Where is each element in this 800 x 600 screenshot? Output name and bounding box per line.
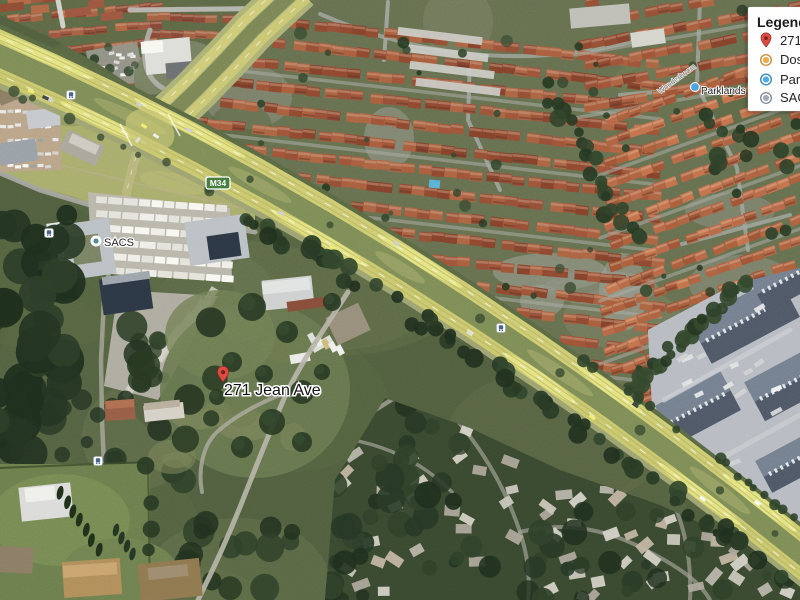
svg-text:Dosprop: Dosprop xyxy=(780,52,800,67)
svg-text:Parklands: Parklands xyxy=(780,72,800,87)
svg-text:SACS: SACS xyxy=(780,90,800,105)
svg-text:Legend: Legend xyxy=(757,14,800,30)
svg-text:M34: M34 xyxy=(210,178,227,188)
svg-text:271 Jean Ave: 271 Jean Ave xyxy=(224,382,321,399)
svg-text:271 Jean Ave: 271 Jean Ave xyxy=(780,33,800,48)
svg-text:Parklands: Parklands xyxy=(701,86,745,97)
